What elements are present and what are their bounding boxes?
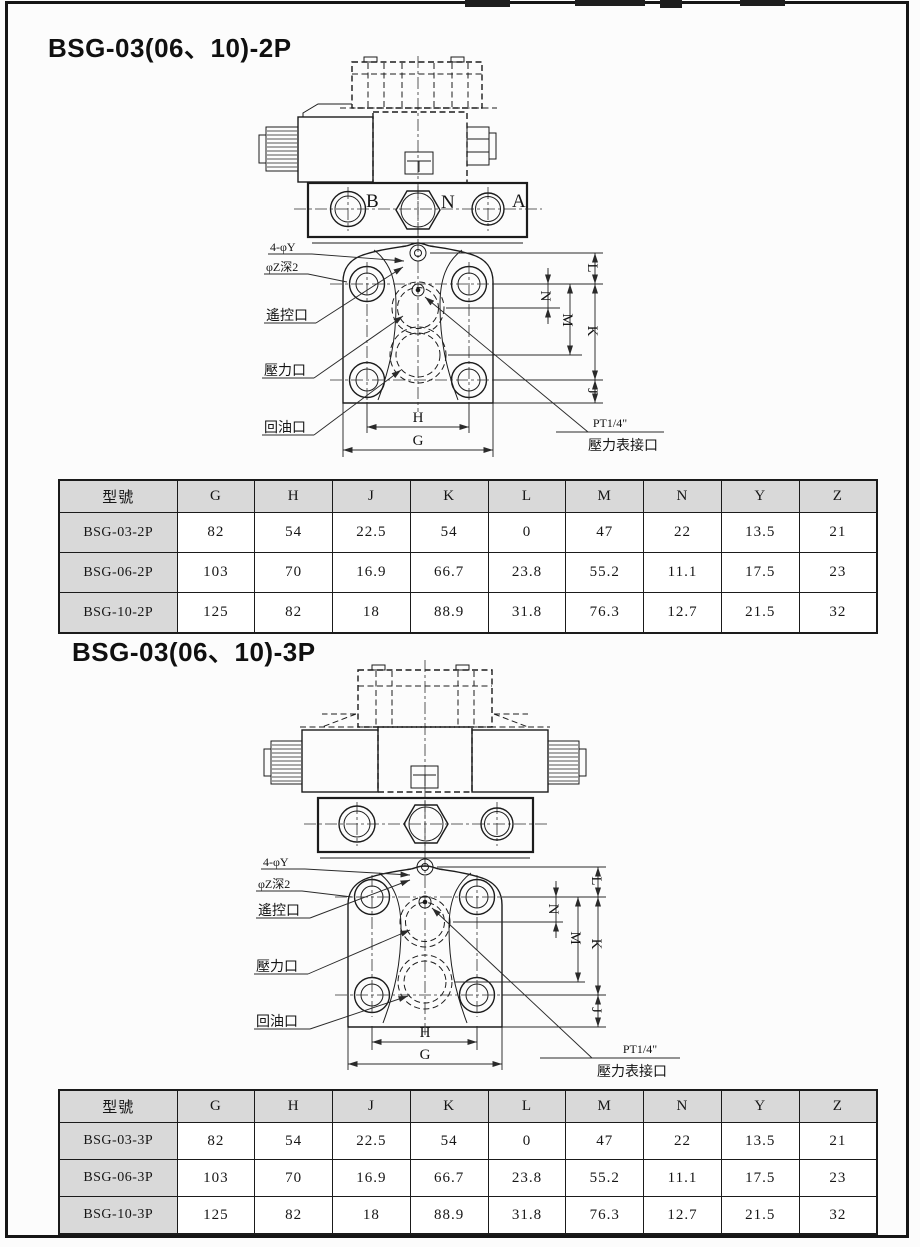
column-header: Y (721, 1090, 799, 1123)
value-cell: 66.7 (410, 553, 488, 593)
column-header: N (644, 480, 722, 513)
column-header: H (255, 1090, 333, 1123)
dim-label-g: G (413, 433, 424, 449)
value-cell: 22 (644, 1123, 722, 1160)
value-cell: 31.8 (488, 1197, 566, 1235)
column-header: J (333, 1090, 411, 1123)
table-row: BSG-03-2P825422.5540472213.521 (59, 513, 877, 553)
valve-drawing-2p: B N A (259, 56, 664, 457)
value-cell: 88.9 (410, 593, 488, 634)
model-cell: BSG-06-3P (59, 1160, 177, 1197)
value-cell: 82 (255, 1197, 333, 1235)
value-cell: 16.9 (333, 1160, 411, 1197)
column-header: K (410, 1090, 488, 1123)
value-cell: 76.3 (566, 593, 644, 634)
value-cell: 22.5 (333, 1123, 411, 1160)
side-view-2p: B N A (259, 56, 542, 240)
table-row: BSG-06-2P1037016.966.723.855.211.117.523 (59, 553, 877, 593)
gauge-port-label: 壓力表接口 (588, 437, 658, 454)
value-cell: 11.1 (644, 553, 722, 593)
callout-pressure-port: 壓力口 (256, 959, 298, 975)
column-header: K (410, 480, 488, 513)
dim-label-l: L (588, 876, 604, 885)
solenoid-connector (266, 127, 298, 171)
dim-label-n: N (537, 291, 553, 302)
value-cell: 21 (799, 1123, 877, 1160)
dim-label-j: J (584, 388, 600, 394)
value-cell: 103 (177, 1160, 255, 1197)
value-cell: 23.8 (488, 1160, 566, 1197)
catalog-page: BSG-03(06、10)-2P BSG-03(06、10)-3P .ar1{m… (0, 0, 920, 1247)
value-cell: 55.2 (566, 1160, 644, 1197)
column-header: L (488, 1090, 566, 1123)
column-header: M (566, 1090, 644, 1123)
value-cell: 13.5 (721, 513, 799, 553)
value-cell: 54 (410, 513, 488, 553)
column-header: J (333, 480, 411, 513)
callouts-3p: 4-φY φZ深2 遙控口 壓力口 回油口 PT1/4" 壓力表接口 (254, 855, 680, 1080)
value-cell: 125 (177, 1197, 255, 1235)
column-header: Z (799, 480, 877, 513)
column-header: Z (799, 1090, 877, 1123)
dim-label-m: M (567, 931, 583, 944)
gauge-thread-label: PT1/4" (623, 1042, 657, 1056)
value-cell: 54 (255, 513, 333, 553)
callout-pressure-port: 壓力口 (264, 363, 306, 379)
port-label-b: B (366, 191, 379, 212)
solenoid-coil-right (472, 730, 548, 792)
callout-holes: 4-φY (263, 855, 289, 869)
table-row: BSG-06-3P1037016.966.723.855.211.117.523 (59, 1160, 877, 1197)
value-cell: 82 (177, 513, 255, 553)
callout-return-port: 回油口 (264, 420, 306, 436)
value-cell: 31.8 (488, 593, 566, 634)
dim-label-j: J (588, 1007, 604, 1013)
callout-return-port: 回油口 (256, 1014, 298, 1030)
value-cell: 18 (333, 593, 411, 634)
value-cell: 17.5 (721, 553, 799, 593)
value-cell: 12.7 (644, 593, 722, 634)
value-cell: 16.9 (333, 553, 411, 593)
end-plug (467, 127, 489, 165)
value-cell: 32 (799, 593, 877, 634)
column-header: 型號 (59, 480, 177, 513)
model-cell: BSG-03-3P (59, 1123, 177, 1160)
value-cell: 125 (177, 593, 255, 634)
value-cell: 22 (644, 513, 722, 553)
mounting-face-view-3p (320, 855, 530, 1035)
side-view-3p (264, 660, 586, 855)
table-3p: 型號GHJKLMNYZBSG-03-3P825422.5540472213.52… (58, 1089, 878, 1235)
value-cell: 21.5 (721, 1197, 799, 1235)
dimension-table-2p: 型號GHJKLMNYZBSG-03-2P825422.5540472213.52… (58, 479, 878, 634)
value-cell: 12.7 (644, 1197, 722, 1235)
column-header: Y (721, 480, 799, 513)
value-cell: 82 (255, 593, 333, 634)
column-header: L (488, 480, 566, 513)
column-header: G (177, 480, 255, 513)
dim-label-h: H (420, 1025, 431, 1041)
dim-label-g: G (420, 1047, 431, 1063)
dim-label-h: H (413, 410, 424, 426)
value-cell: 17.5 (721, 1160, 799, 1197)
dim-label-k: K (584, 326, 600, 337)
callout-remote-port: 遙控口 (266, 308, 308, 324)
value-cell: 23 (799, 553, 877, 593)
port-label-n: N (441, 192, 455, 213)
model-cell: BSG-10-3P (59, 1197, 177, 1235)
value-cell: 54 (410, 1123, 488, 1160)
value-cell: 18 (333, 1197, 411, 1235)
manifold-block (318, 798, 533, 852)
callout-holes: 4-φY (270, 240, 296, 254)
table-row: BSG-03-3P825422.5540472213.521 (59, 1123, 877, 1160)
value-cell: 103 (177, 553, 255, 593)
value-cell: 0 (488, 513, 566, 553)
table-2p: 型號GHJKLMNYZBSG-03-2P825422.5540472213.52… (58, 479, 878, 634)
value-cell: 23 (799, 1160, 877, 1197)
solenoid-coil-left (302, 730, 378, 792)
value-cell: 70 (255, 553, 333, 593)
table-row: BSG-10-2P125821888.931.876.312.721.532 (59, 593, 877, 634)
value-cell: 66.7 (410, 1160, 488, 1197)
value-cell: 54 (255, 1123, 333, 1160)
value-cell: 23.8 (488, 553, 566, 593)
value-cell: 55.2 (566, 553, 644, 593)
dim-label-k: K (588, 939, 604, 950)
column-header: G (177, 1090, 255, 1123)
column-header: M (566, 480, 644, 513)
value-cell: 82 (177, 1123, 255, 1160)
table-row: BSG-10-3P125821888.931.876.312.721.532 (59, 1197, 877, 1235)
dimensions-right-3p: L K J M N (437, 867, 606, 1027)
value-cell: 32 (799, 1197, 877, 1235)
dim-label-m: M (559, 313, 575, 326)
dimensions-bottom-3p: H G (348, 1025, 502, 1070)
valve-drawing-3p: L K J M N H G 4-φY φZ深2 遙控口 (254, 660, 680, 1080)
value-cell: 70 (255, 1160, 333, 1197)
column-header: 型號 (59, 1090, 177, 1123)
valve-body (373, 112, 467, 183)
model-cell: BSG-03-2P (59, 513, 177, 553)
solenoid-connector-left (271, 741, 302, 784)
dim-label-l: L (584, 263, 600, 272)
value-cell: 21.5 (721, 593, 799, 634)
gauge-thread-label: PT1/4" (593, 416, 627, 430)
solenoid-connector-right (548, 741, 579, 784)
value-cell: 47 (566, 1123, 644, 1160)
callout-depth: φZ深2 (258, 877, 290, 891)
dim-label-n: N (545, 904, 561, 915)
value-cell: 13.5 (721, 1123, 799, 1160)
mounting-face-view-2p (312, 240, 523, 412)
solenoid-coil (298, 117, 373, 182)
value-cell: 22.5 (333, 513, 411, 553)
dimensions-right-2p: L K J M N (430, 253, 603, 403)
value-cell: 0 (488, 1123, 566, 1160)
callouts-2p: 4-φY φZ深2 遙控口 壓力口 回油口 PT1/4" 壓力表接口 (262, 240, 664, 454)
value-cell: 21 (799, 513, 877, 553)
gauge-port-label: 壓力表接口 (597, 1063, 667, 1080)
value-cell: 76.3 (566, 1197, 644, 1235)
model-cell: BSG-10-2P (59, 593, 177, 634)
column-header: N (644, 1090, 722, 1123)
model-cell: BSG-06-2P (59, 553, 177, 593)
port-label-a: A (512, 191, 526, 212)
value-cell: 47 (566, 513, 644, 553)
callout-remote-port: 遙控口 (258, 903, 300, 919)
valve-top-cap (352, 62, 482, 108)
dimensions-bottom-2p: H G (343, 402, 493, 457)
column-header: H (255, 480, 333, 513)
value-cell: 11.1 (644, 1160, 722, 1197)
dimension-table-3p: 型號GHJKLMNYZBSG-03-3P825422.5540472213.52… (58, 1089, 878, 1235)
callout-depth: φZ深2 (266, 260, 298, 274)
value-cell: 88.9 (410, 1197, 488, 1235)
